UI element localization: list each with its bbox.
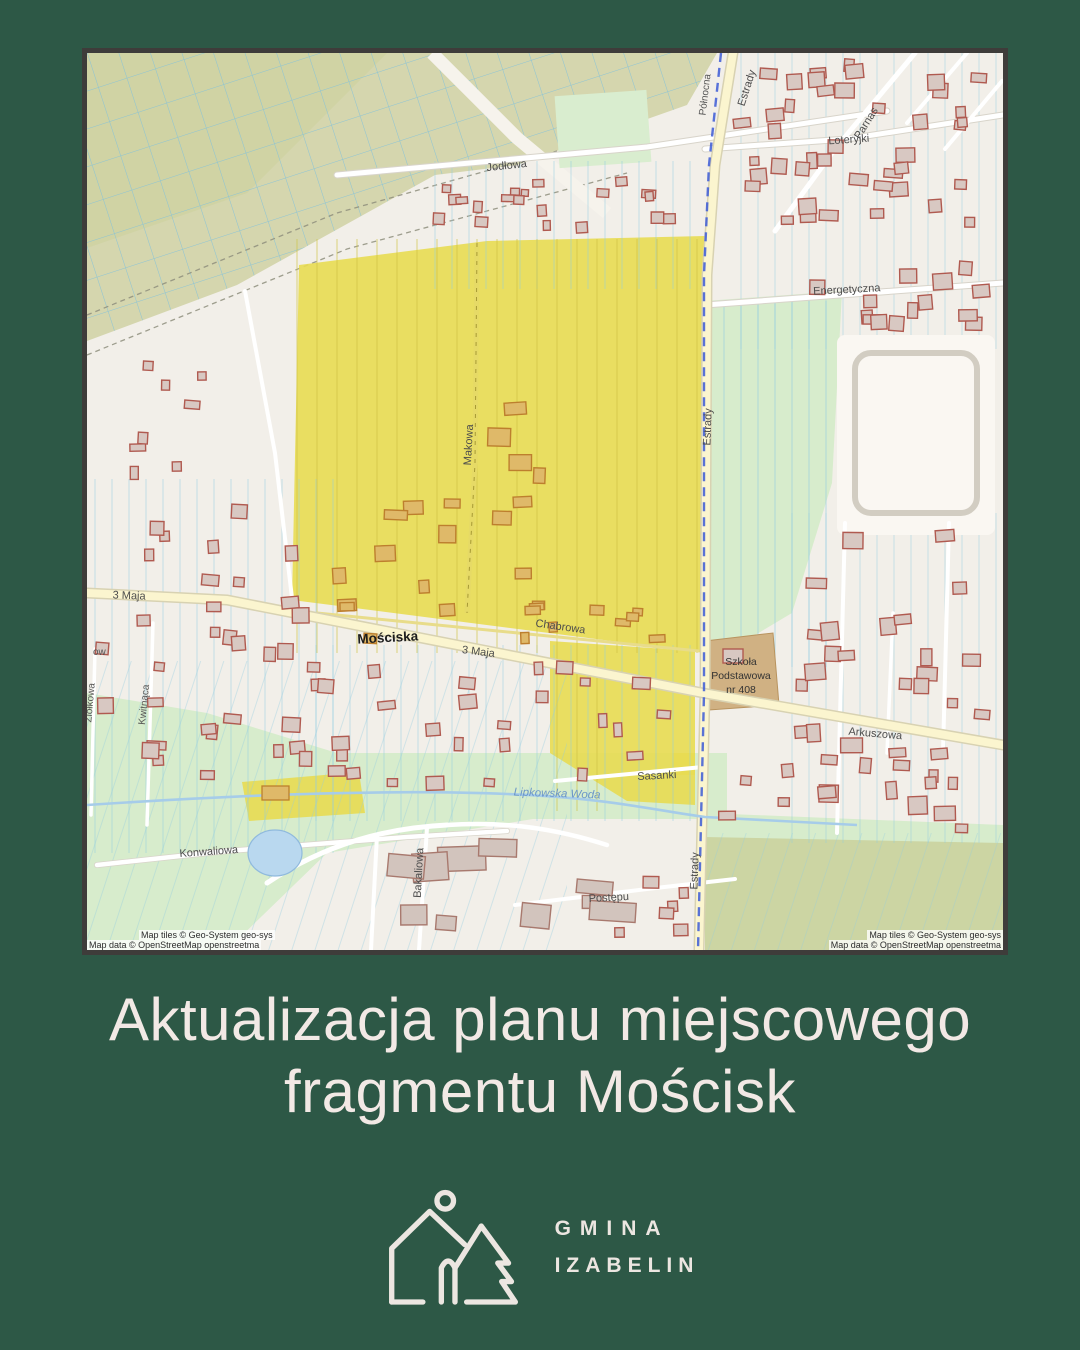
label-edge-fragment: ow <box>93 647 107 658</box>
building <box>130 444 146 451</box>
building <box>913 114 928 130</box>
building <box>401 905 427 925</box>
building <box>458 694 477 710</box>
building <box>387 779 397 787</box>
building <box>615 177 627 187</box>
building <box>138 432 148 444</box>
building <box>145 549 154 561</box>
building <box>795 162 809 176</box>
poster-title: Aktualizacja planu miejscowego fragmentu… <box>0 984 1080 1128</box>
building <box>900 269 917 283</box>
building <box>843 532 863 548</box>
building <box>955 824 967 833</box>
building <box>781 764 793 778</box>
logo-org-line1: GMINA <box>555 1210 700 1247</box>
building <box>925 777 937 789</box>
building <box>787 74 803 90</box>
attribution-data-text: Map data © OpenStreetMap openstreetma <box>829 940 1003 950</box>
building <box>375 545 396 561</box>
building <box>598 714 607 728</box>
building <box>657 710 671 719</box>
building <box>819 210 838 221</box>
building <box>454 737 463 750</box>
building <box>663 214 675 224</box>
building <box>963 654 981 666</box>
building <box>233 577 244 587</box>
building <box>299 751 311 766</box>
building <box>771 158 787 174</box>
building <box>914 678 929 693</box>
gmina-izabelin-logo-text: GMINA IZABELIN <box>555 1210 700 1284</box>
label-estrady-mid: Estrady <box>701 408 714 446</box>
building <box>488 428 511 447</box>
building <box>515 568 531 579</box>
building <box>719 811 736 820</box>
building <box>794 726 807 739</box>
building <box>184 400 200 409</box>
building <box>262 786 289 800</box>
building <box>838 650 855 660</box>
building <box>957 117 967 127</box>
map-attribution-right: Map tiles © Geo-System geo-sys Map data … <box>829 930 1003 950</box>
building <box>614 723 623 737</box>
building <box>818 154 832 166</box>
building <box>806 578 827 589</box>
building <box>597 189 609 198</box>
building <box>231 636 245 651</box>
building <box>513 496 532 507</box>
building <box>849 173 868 186</box>
building <box>201 574 219 586</box>
building <box>439 604 455 617</box>
logo-tree-icon <box>455 1226 515 1302</box>
building <box>896 148 915 163</box>
label-3maja-left: 3 Maja <box>112 589 146 602</box>
building <box>841 738 863 753</box>
building <box>821 755 838 765</box>
label-szkola-3: nr 408 <box>726 684 756 696</box>
building <box>368 665 381 679</box>
building <box>835 83 855 98</box>
building <box>340 602 354 610</box>
label-szkola-1: Szkoła <box>725 656 757 668</box>
building <box>818 786 837 799</box>
building <box>953 582 967 594</box>
building <box>201 771 215 780</box>
building <box>590 605 604 615</box>
building <box>927 74 944 90</box>
building <box>928 199 941 213</box>
building <box>384 510 407 520</box>
building <box>615 928 625 938</box>
building <box>894 614 911 625</box>
building <box>201 723 216 734</box>
building <box>804 663 826 681</box>
building <box>511 188 520 195</box>
building <box>750 157 759 166</box>
building <box>659 907 674 919</box>
building <box>433 213 445 225</box>
attribution-tiles-text: Map tiles © Geo-System geo-sys <box>139 930 275 940</box>
building <box>576 222 588 233</box>
building <box>955 179 967 189</box>
building <box>785 99 795 112</box>
label-moscsiska: Mościska <box>357 628 419 646</box>
building <box>845 64 864 79</box>
building <box>492 511 511 525</box>
attribution-data-text: Map data © OpenStreetMap openstreetma <box>87 940 261 950</box>
building <box>444 499 460 508</box>
building <box>643 876 659 888</box>
building <box>889 748 906 758</box>
building <box>210 627 219 637</box>
building <box>745 181 760 192</box>
building <box>346 767 360 779</box>
building <box>674 924 688 936</box>
map-frame: Jodłowa Loteryjki Parnas Energetyczna Es… <box>82 48 1008 955</box>
building <box>442 185 451 193</box>
building <box>651 212 664 223</box>
building <box>627 751 643 760</box>
building <box>318 679 334 694</box>
building <box>974 709 990 719</box>
building <box>498 721 511 730</box>
building <box>307 662 320 672</box>
building <box>820 621 839 640</box>
label-szkola-2: Podstawowa <box>711 670 771 682</box>
building <box>965 217 975 227</box>
building <box>899 678 911 689</box>
poster-title-line2: fragmentu Mościsk <box>0 1056 1080 1128</box>
building <box>499 738 510 752</box>
building <box>292 608 309 623</box>
building <box>419 580 430 593</box>
building <box>893 760 909 771</box>
building <box>556 661 573 674</box>
building <box>971 73 987 83</box>
building <box>98 698 114 714</box>
poster: Jodłowa Loteryjki Parnas Energetyczna Es… <box>0 0 1080 1350</box>
building <box>956 106 966 117</box>
building <box>908 303 918 319</box>
building <box>426 776 444 790</box>
building <box>514 195 524 204</box>
building <box>521 632 530 643</box>
building <box>456 197 468 204</box>
building <box>934 806 955 821</box>
building <box>908 796 928 815</box>
building <box>626 612 638 621</box>
building <box>645 191 654 201</box>
gmina-izabelin-logo-icon <box>381 1186 527 1308</box>
label-sasanki: Sasanki <box>637 769 677 783</box>
building <box>479 838 517 857</box>
building <box>207 602 221 612</box>
building <box>525 606 540 615</box>
building <box>766 108 784 122</box>
building <box>378 700 396 710</box>
building <box>231 504 247 519</box>
building <box>484 778 495 786</box>
building <box>733 118 751 129</box>
building <box>768 123 781 139</box>
building <box>894 162 909 175</box>
building <box>889 316 905 332</box>
building <box>274 745 283 758</box>
building <box>859 758 871 774</box>
building <box>577 768 587 781</box>
building <box>817 85 834 97</box>
building <box>921 649 932 666</box>
gmina-izabelin-logo: GMINA IZABELIN <box>0 1186 1080 1308</box>
building <box>332 568 346 584</box>
building <box>536 691 548 703</box>
building <box>150 521 164 535</box>
building <box>948 777 957 789</box>
building <box>473 201 482 212</box>
building <box>972 284 990 298</box>
building <box>533 468 545 484</box>
building <box>931 748 948 760</box>
building <box>632 677 650 689</box>
building <box>864 295 877 308</box>
building <box>959 261 973 275</box>
depot-area <box>837 335 995 535</box>
building <box>871 314 887 329</box>
building <box>778 798 789 807</box>
label-estrady-bottom: Estrady <box>688 852 701 890</box>
building <box>808 72 825 88</box>
building <box>534 662 543 675</box>
building <box>870 209 883 219</box>
building <box>435 915 456 931</box>
building <box>933 273 953 290</box>
building <box>439 525 456 542</box>
building <box>142 742 159 758</box>
building <box>918 295 933 311</box>
building <box>198 372 206 380</box>
building <box>947 699 957 708</box>
building <box>543 221 550 231</box>
map-svg: Jodłowa Loteryjki Parnas Energetyczna Es… <box>87 53 1003 950</box>
label-makowa: Makowa <box>462 423 476 465</box>
building <box>509 455 531 471</box>
building <box>172 462 181 471</box>
building <box>281 596 299 609</box>
building <box>137 615 150 626</box>
building <box>328 766 345 777</box>
building <box>208 540 219 553</box>
building <box>520 903 551 929</box>
building <box>740 776 751 786</box>
building <box>798 198 816 215</box>
building <box>475 217 488 228</box>
building <box>580 678 590 686</box>
building <box>679 888 688 899</box>
building <box>459 677 476 690</box>
building <box>806 724 820 742</box>
building <box>130 466 138 479</box>
building <box>224 713 242 724</box>
building <box>935 529 954 542</box>
map-attribution-left: Map tiles © Geo-System geo-sys Map data … <box>87 930 275 950</box>
building <box>537 205 547 216</box>
building <box>143 361 153 371</box>
label-postepu: Postępu <box>588 891 629 905</box>
building <box>504 402 527 416</box>
building <box>760 68 777 80</box>
building <box>162 380 170 390</box>
poster-title-line1: Aktualizacja planu miejscowego <box>0 984 1080 1056</box>
building <box>332 736 350 750</box>
building <box>282 717 301 732</box>
building <box>154 662 165 671</box>
logo-sun-icon <box>437 1192 454 1209</box>
building <box>285 546 298 562</box>
building <box>874 181 893 192</box>
building <box>264 647 276 661</box>
building <box>959 310 978 322</box>
logo-org-line2: IZABELIN <box>555 1247 700 1284</box>
building <box>426 723 441 736</box>
attribution-tiles-text: Map tiles © Geo-System geo-sys <box>867 930 1003 940</box>
building <box>781 216 793 224</box>
building <box>885 781 897 799</box>
building <box>278 643 294 659</box>
building <box>649 635 665 643</box>
building <box>533 179 544 187</box>
